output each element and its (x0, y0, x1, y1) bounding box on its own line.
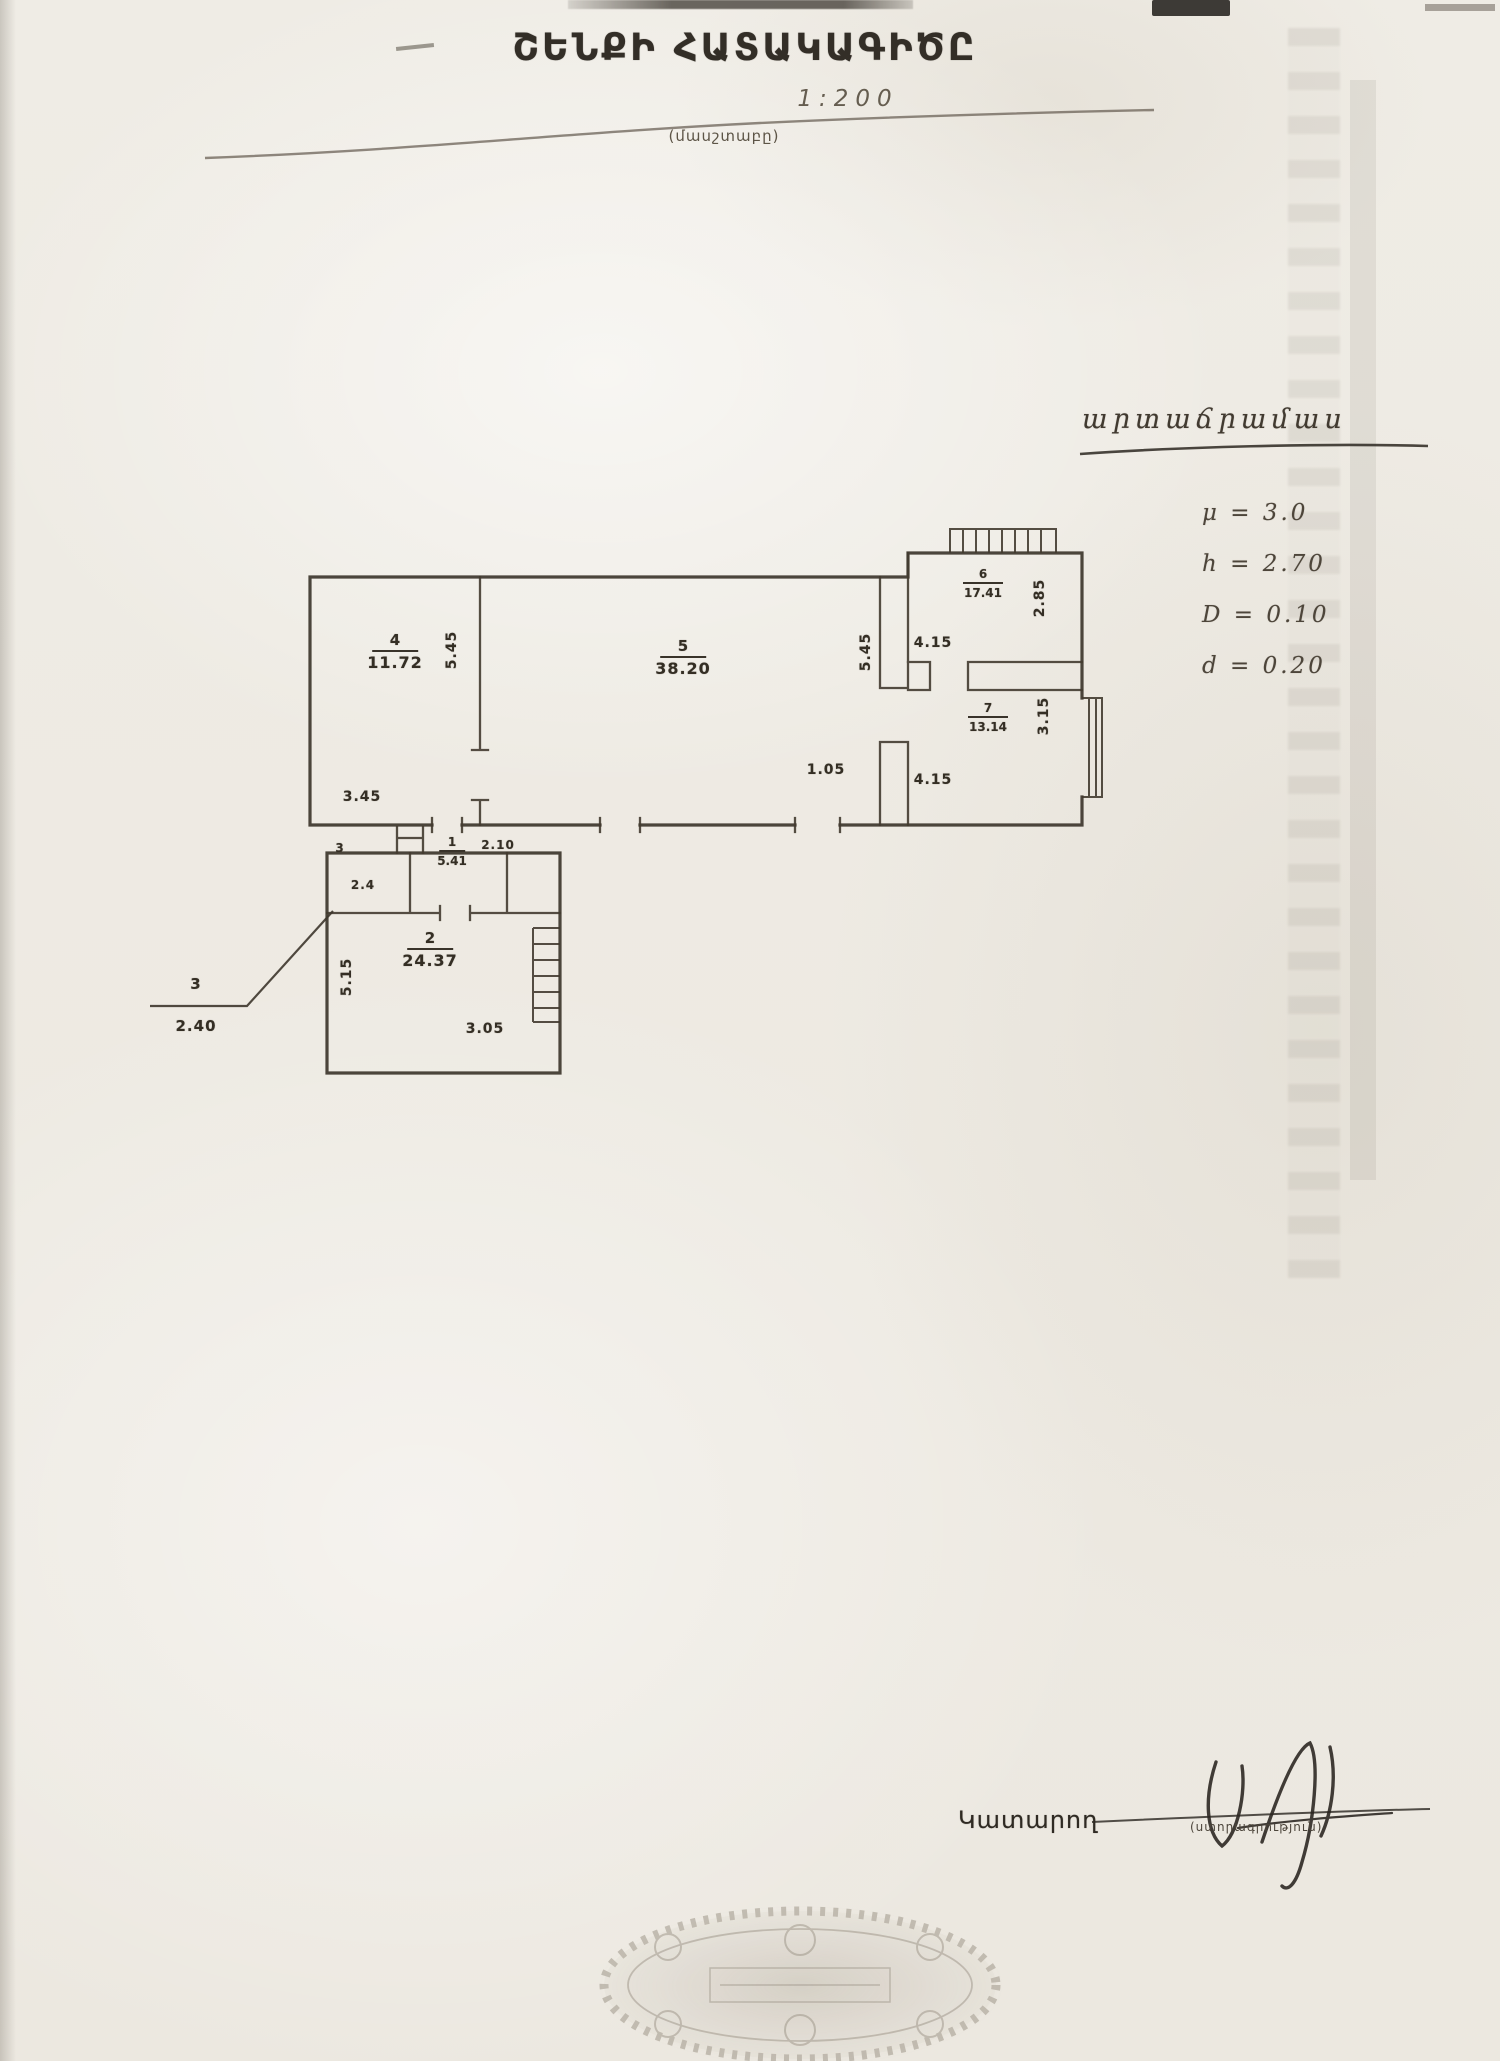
room-area: 24.37 (402, 953, 458, 969)
room3-area-inline: 2.4 (351, 878, 375, 892)
scanned-floor-plan-page: ՇԵՆՔԻ ՀԱՏԱԿԱԳԻԾԸ 1:200 (մասշտաբը) արտաճր… (0, 0, 1500, 2061)
room-number: 5 (678, 638, 688, 654)
dim-room2-width: 3.05 (466, 1021, 505, 1037)
official-stamp (604, 1911, 996, 2059)
dim-room2-height: 5.15 (339, 958, 355, 997)
executor-label: Կատարող (958, 1806, 1098, 1834)
fraction-line (407, 948, 453, 950)
fraction-line (372, 650, 418, 652)
leader-room-area: 2.40 (175, 1017, 216, 1035)
dim-room4-height: 5.45 (444, 631, 460, 670)
room-label-7: 7 13.14 (968, 702, 1008, 733)
room-label-2: 2 24.37 (402, 930, 458, 969)
room-number: 2 (425, 930, 435, 946)
room-label-4: 4 11.72 (367, 632, 423, 671)
floor-plan-outer-walls (310, 553, 1082, 1073)
dim-room7-width: 4.15 (914, 772, 953, 788)
dim-room1-width: 2.10 (481, 838, 515, 852)
stairs-annex (533, 928, 560, 1022)
room-number: 7 (984, 702, 992, 714)
stairs-hatch-top (950, 529, 1056, 553)
room-number: 1 (448, 836, 456, 848)
room-area: 38.20 (655, 661, 711, 677)
dim-room7-height: 3.15 (1036, 697, 1052, 736)
leader-room-number: 3 (190, 975, 201, 993)
room-label-1: 1 5.41 (437, 836, 467, 867)
room-area: 5.41 (437, 855, 467, 867)
dim-room6-height: 2.85 (1032, 579, 1048, 618)
room-label-5: 5 38.20 (655, 638, 711, 677)
signature-caption: (ստորագրություն) (1190, 1820, 1322, 1834)
room-area: 17.41 (964, 587, 1002, 599)
room-label-6: 6 17.41 (963, 568, 1003, 599)
dim-room5-width: 1.05 (807, 762, 846, 778)
room-number: 4 (390, 632, 400, 648)
fraction-line (963, 582, 1003, 584)
drawing-linework (0, 0, 1500, 2061)
fraction-line (439, 850, 465, 852)
room3-number-inline: 3 (335, 841, 344, 855)
notes-underline (1080, 445, 1428, 454)
room-area: 11.72 (367, 655, 423, 671)
leader-line (150, 911, 333, 1006)
window-right (1082, 698, 1102, 797)
fraction-line (660, 656, 706, 658)
room-number: 6 (979, 568, 987, 580)
title-underline-curve (205, 110, 1154, 158)
room-area: 13.14 (969, 721, 1007, 733)
dim-room6-width: 4.15 (914, 635, 953, 651)
fraction-line (968, 716, 1008, 718)
dim-room4-width: 3.45 (343, 789, 382, 805)
dim-room5-height: 5.45 (858, 633, 874, 672)
